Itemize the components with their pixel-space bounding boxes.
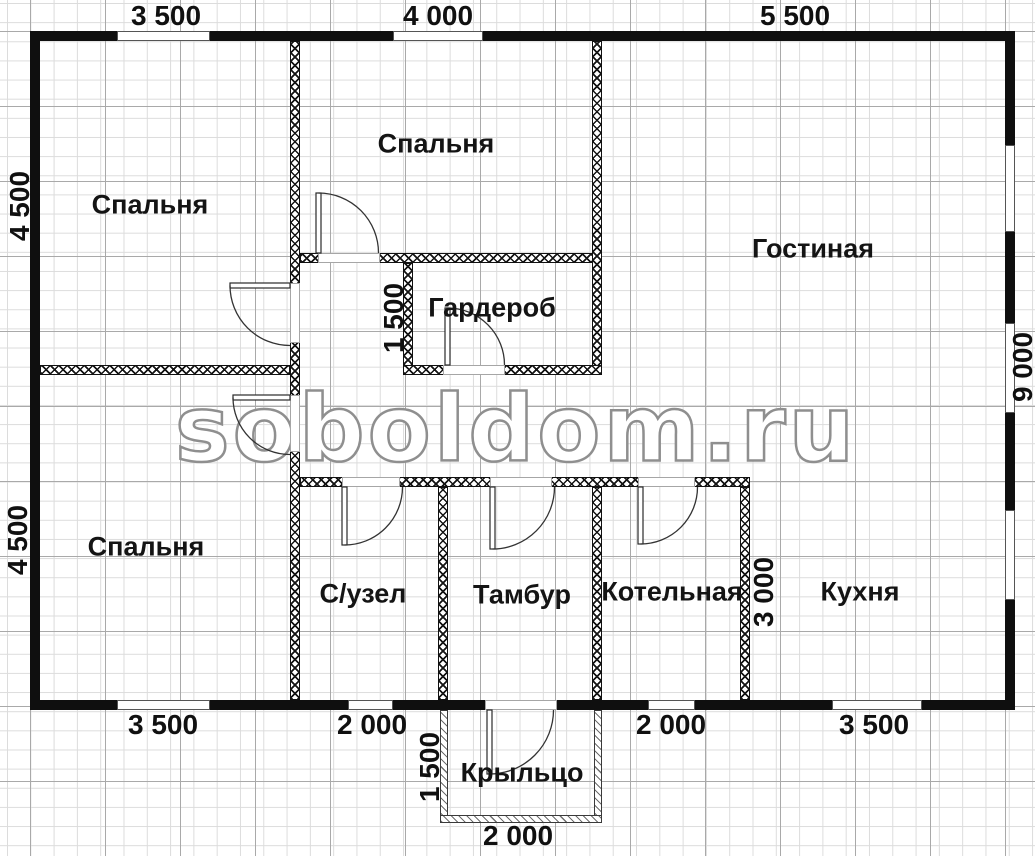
room-label-bathroom: С/узел <box>320 579 407 610</box>
door-opening-porch <box>485 700 557 710</box>
room-label-vestibule: Тамбур <box>473 580 571 611</box>
door-bathroom <box>342 487 404 547</box>
dim-bottom-1: 3 500 <box>128 709 198 741</box>
dim-right-1: 9 000 <box>1007 332 1035 402</box>
door-opening-bedroom1 <box>290 283 300 343</box>
door-opening-vestibule <box>490 477 552 487</box>
wall-interior-vertical-left <box>290 41 300 700</box>
room-label-bedroom-top-left: Спальня <box>92 190 209 221</box>
wall-bedrooms-divider <box>40 365 290 375</box>
dim-top-1: 3 500 <box>131 0 201 32</box>
room-label-wardrobe: Гардероб <box>428 293 556 324</box>
room-label-bedroom-top-middle: Спальня <box>378 129 495 160</box>
porch-wall-right <box>594 710 602 823</box>
dim-bottom-3: 2 000 <box>636 709 706 741</box>
wall-outer-left <box>30 31 40 710</box>
room-label-living-room: Гостиная <box>752 234 874 265</box>
dim-wardrobe-depth: 1 500 <box>378 283 410 353</box>
door-bedroom1 <box>230 283 290 346</box>
door-opening-wardrobe <box>443 365 505 375</box>
dim-bottom-2: 2 000 <box>337 709 407 741</box>
dim-boiler-width: 3 000 <box>748 557 780 627</box>
dim-bottom-4: 3 500 <box>839 709 909 741</box>
dim-top-3: 5 500 <box>760 0 830 32</box>
door-vestibule <box>490 487 556 551</box>
door-boiler <box>638 487 700 546</box>
dim-left-2: 4 500 <box>2 505 34 575</box>
door-opening-bathroom <box>342 477 400 487</box>
dim-left-1: 4 500 <box>4 171 36 241</box>
door-bedroom3 <box>233 395 290 455</box>
dim-porch-depth: 1 500 <box>414 732 446 802</box>
floor-plan: soboldom.ru <box>0 0 1035 856</box>
wall-living-left <box>592 41 602 373</box>
room-label-bedroom-bottom-left: Спальня <box>88 532 205 563</box>
dim-porch-width: 2 000 <box>483 820 553 852</box>
dim-top-2: 4 000 <box>403 0 473 32</box>
window-living-right-1 <box>1005 145 1015 232</box>
door-opening-bedroom2 <box>318 253 380 263</box>
door-bedroom2 <box>316 193 382 253</box>
window-bedroom2-top <box>393 31 483 41</box>
room-label-boiler-room: Котельная <box>601 577 742 608</box>
door-opening-boiler <box>638 477 695 487</box>
wall-bathroom-vestibule <box>438 487 448 700</box>
window-bedroom1-top <box>117 31 210 41</box>
room-label-porch: Крыльцо <box>461 758 584 789</box>
room-label-kitchen: Кухня <box>821 577 900 608</box>
door-opening-bedroom3 <box>290 395 300 452</box>
window-kitchen-right <box>1005 510 1015 600</box>
